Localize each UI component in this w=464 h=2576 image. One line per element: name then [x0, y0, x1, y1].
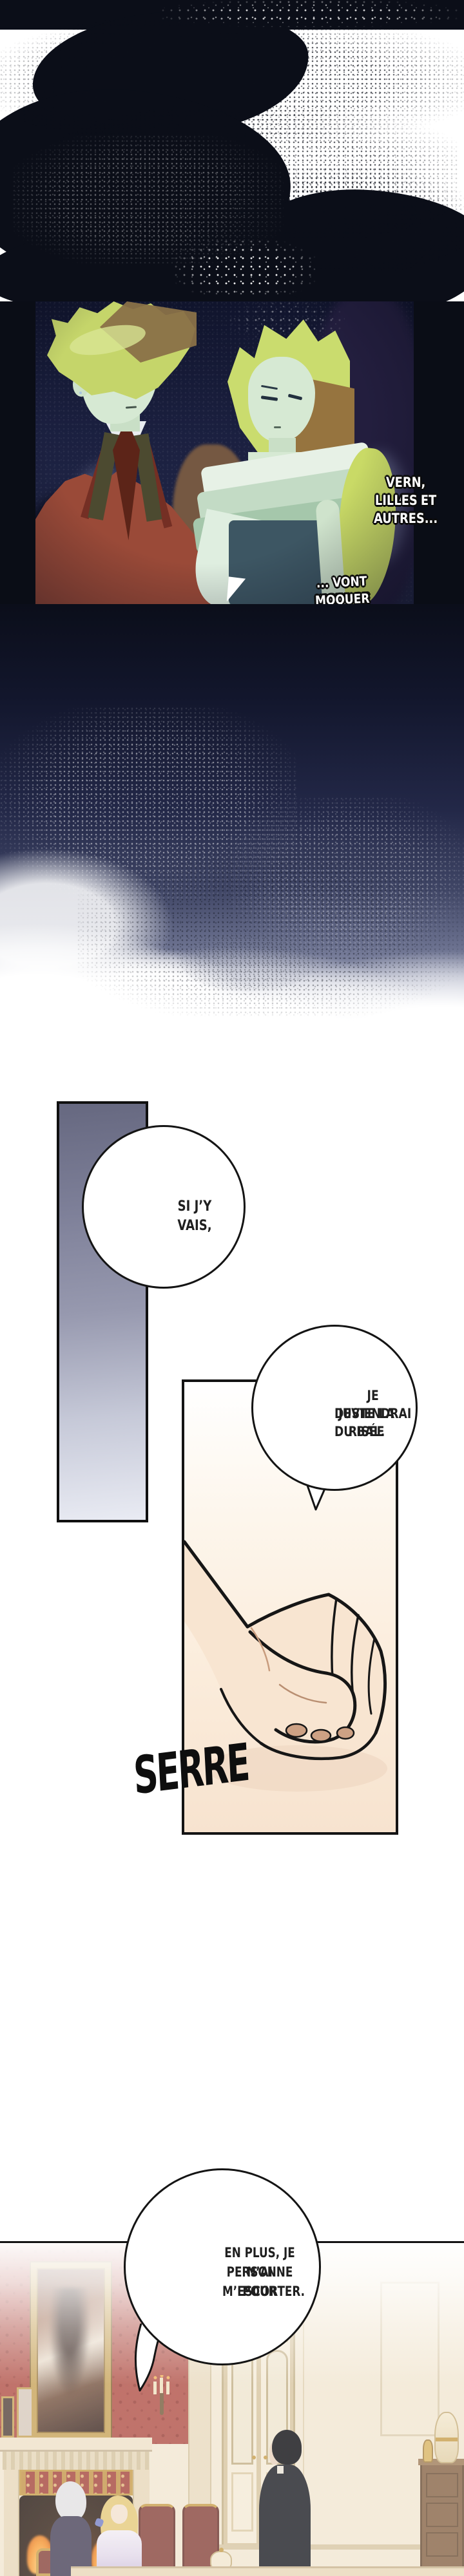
panel-frame-left	[0, 301, 35, 604]
panel-ballroom	[35, 301, 414, 604]
speech-bubble-risee-text: JE DEVIENDRAI JUSTE LA RISÉE DU BAL.	[271, 1387, 398, 1423]
grey-remnant-patch	[180, 933, 316, 992]
sfx-serre-text: SERRE	[132, 1732, 249, 1806]
dialogue-vern: VERN, LILIAN ET LES AUTRES...	[305, 473, 439, 491]
panel-frame-right	[414, 301, 464, 604]
stars-above-panel	[174, 240, 316, 299]
webtoon-page: VERN, LILIAN ET LES AUTRES... ... VONT J…	[0, 0, 464, 2576]
grunge-transition	[0, 604, 464, 1063]
sfx-serre: SERRE	[132, 1733, 247, 1837]
bubble-si-line1: SI J’Y VAIS,	[164, 1197, 226, 1236]
top-ink-zone	[0, 0, 464, 301]
stars-top-band	[161, 0, 458, 27]
dialogue-vern-line2: LES AUTRES...	[372, 491, 440, 527]
grunge-speckle-3	[232, 797, 464, 952]
speech-bubble-escorte-text: EN PLUS, JE N’AI PERSONNE POUR M’ESCORTE…	[148, 2243, 297, 2282]
panel-vignette	[35, 301, 414, 604]
bubble-risee-line3: DU BAL.	[334, 1423, 385, 1441]
bubble-escorte-line3: M’ESCORTER.	[222, 2282, 305, 2301]
